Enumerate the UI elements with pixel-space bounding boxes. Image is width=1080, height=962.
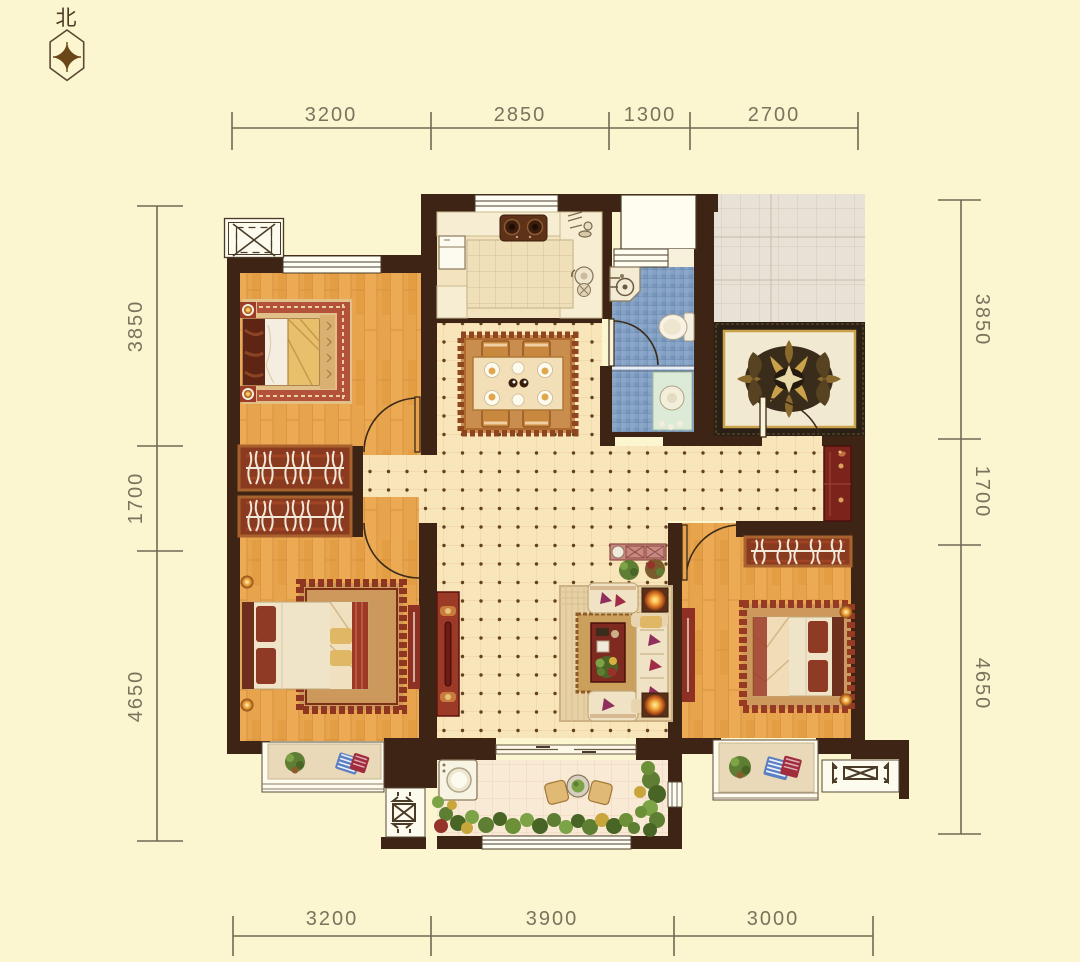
svg-text:1700: 1700 (971, 466, 993, 519)
svg-text:3850: 3850 (125, 300, 147, 353)
svg-text:1300: 1300 (624, 104, 677, 126)
svg-text:2700: 2700 (748, 104, 801, 126)
svg-text:北: 北 (56, 7, 77, 30)
svg-text:2850: 2850 (494, 104, 547, 126)
svg-text:3850: 3850 (971, 294, 993, 347)
svg-text:3000: 3000 (747, 908, 800, 930)
svg-text:4650: 4650 (125, 670, 147, 723)
svg-text:4650: 4650 (971, 658, 993, 711)
svg-text:3200: 3200 (306, 908, 359, 930)
svg-text:3900: 3900 (526, 908, 579, 930)
svg-text:3200: 3200 (305, 104, 358, 126)
svg-text:1700: 1700 (125, 472, 147, 525)
